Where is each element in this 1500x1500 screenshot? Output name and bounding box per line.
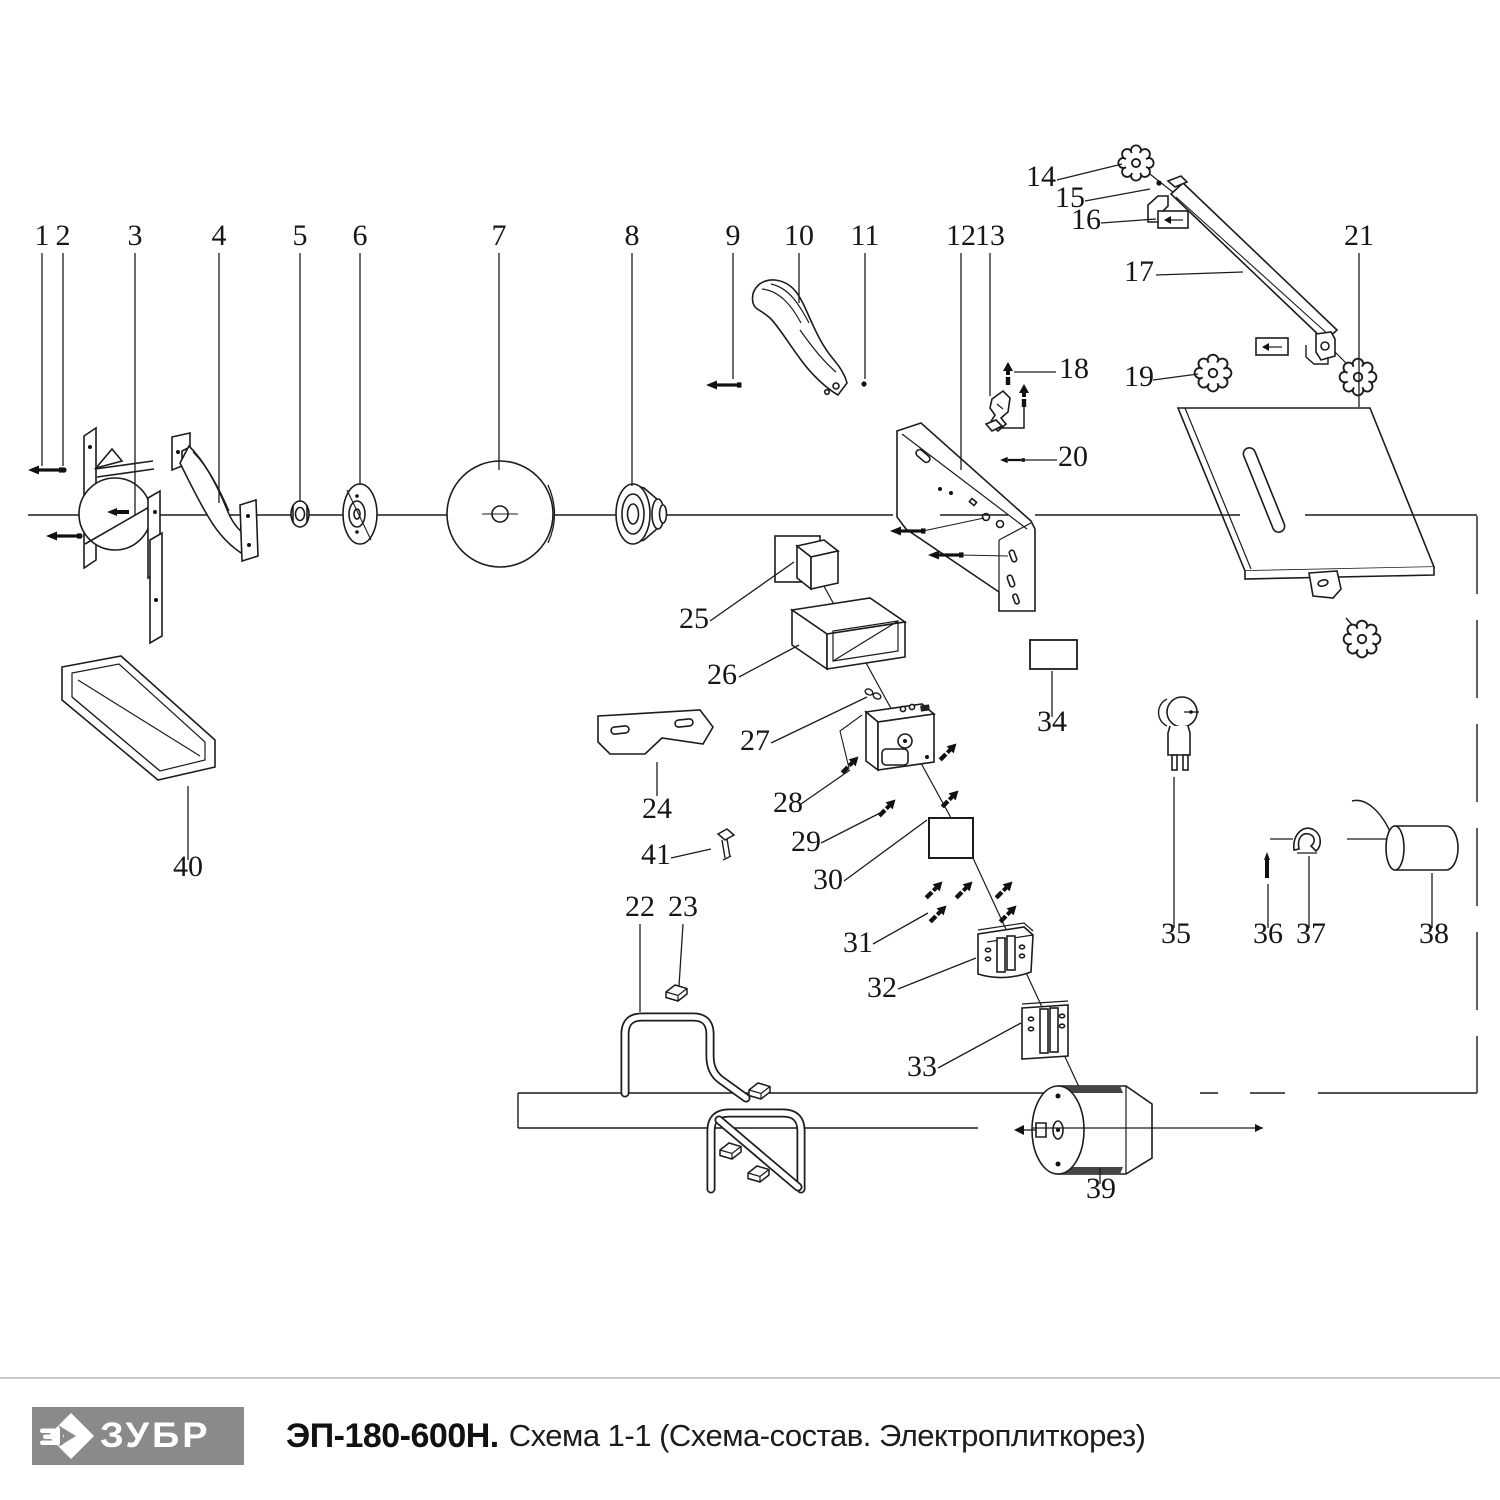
part-31-screws bbox=[923, 878, 1020, 925]
part-label-33: 33 bbox=[907, 1050, 937, 1083]
part-13-cable-clamp bbox=[986, 391, 1024, 431]
part-35-power-plug bbox=[1159, 697, 1199, 770]
part-label-23: 23 bbox=[668, 890, 698, 923]
part-label-11: 11 bbox=[851, 219, 880, 252]
part-17-guide-rail bbox=[1146, 171, 1351, 368]
part-label-2: 2 bbox=[56, 219, 71, 252]
part-label-13: 13 bbox=[975, 219, 1005, 252]
zubr-logo-icon bbox=[38, 1407, 100, 1465]
part-32-brush-holder bbox=[978, 923, 1033, 978]
part-label-24: 24 bbox=[642, 792, 672, 825]
part-label-41: 41 bbox=[641, 838, 671, 871]
part-label-35: 35 bbox=[1161, 917, 1191, 950]
part-label-17: 17 bbox=[1124, 255, 1154, 288]
drawing-title: ЭП-180-600Н. Схема 1-1 (Схема-состав. Эл… bbox=[286, 1400, 1146, 1472]
rail-end-knob bbox=[1340, 359, 1377, 396]
part-label-9: 9 bbox=[726, 219, 741, 252]
part-label-8: 8 bbox=[625, 219, 640, 252]
leader-lines bbox=[42, 164, 1432, 1184]
part-label-34: 34 bbox=[1037, 705, 1067, 738]
part-label-12: 12 bbox=[946, 219, 976, 252]
footer-separator bbox=[0, 1377, 1500, 1379]
part-label-1: 1 bbox=[35, 219, 50, 252]
part-label-4: 4 bbox=[212, 219, 227, 252]
part-7-cutting-disc bbox=[447, 461, 555, 567]
part-label-16: 16 bbox=[1071, 203, 1101, 236]
part-label-39: 39 bbox=[1086, 1172, 1116, 1205]
part-22-tube-frame bbox=[625, 1017, 801, 1189]
part-label-30: 30 bbox=[813, 863, 843, 896]
zubr-logo: ЗУБР bbox=[32, 1407, 244, 1465]
part-9-bolt bbox=[706, 381, 742, 390]
part-19-star-knob bbox=[1195, 355, 1232, 392]
part-33-brush-holder bbox=[1022, 1001, 1068, 1059]
part-label-10: 10 bbox=[784, 219, 814, 252]
part-27-screw bbox=[864, 688, 882, 700]
part-10-handle-bracket bbox=[753, 280, 847, 395]
part-label-36: 36 bbox=[1253, 917, 1283, 950]
part-6-outer-flange bbox=[343, 484, 377, 544]
part-24-cover-plate bbox=[598, 710, 713, 754]
part-8-inner-flange bbox=[616, 484, 667, 544]
part-label-21: 21 bbox=[1344, 219, 1374, 252]
part-41-bolt bbox=[718, 829, 734, 860]
part-label-28: 28 bbox=[773, 786, 803, 819]
part-label-18: 18 bbox=[1059, 352, 1089, 385]
part-label-40: 40 bbox=[173, 850, 203, 883]
part-30-plate bbox=[929, 818, 973, 858]
part-15-pin bbox=[1156, 180, 1161, 185]
part-label-3: 3 bbox=[128, 219, 143, 252]
brand-name: ЗУБР bbox=[100, 1419, 211, 1454]
footer: ЗУБР ЭП-180-600Н. Схема 1-1 (Схема-соста… bbox=[0, 1400, 1500, 1500]
part-label-31: 31 bbox=[843, 926, 873, 959]
part-label-27: 27 bbox=[740, 724, 770, 757]
part-label-38: 38 bbox=[1419, 917, 1449, 950]
part-39-motor bbox=[1014, 1086, 1152, 1174]
part-3-blade-guard bbox=[79, 428, 162, 643]
part-12-motor-bracket bbox=[897, 423, 1035, 611]
part-37-cable-clamp bbox=[1270, 828, 1320, 853]
part-label-6: 6 bbox=[353, 219, 368, 252]
part-label-7: 7 bbox=[492, 219, 507, 252]
center-axis-lines bbox=[28, 515, 1477, 1128]
part-14-star-knob bbox=[1118, 145, 1153, 180]
part-5-nut bbox=[291, 501, 309, 527]
part-label-19: 19 bbox=[1124, 360, 1154, 393]
part-number-labels: 1 2 3 4 5 6 7 8 9 10 11 12 13 14 15 16 1… bbox=[35, 160, 1450, 1205]
part-38-capacitor bbox=[1347, 800, 1458, 870]
part-label-26: 26 bbox=[707, 658, 737, 691]
part-4-guard-bracket bbox=[172, 433, 258, 561]
part-25-switch-cover bbox=[775, 536, 838, 589]
part-34-plate bbox=[1030, 640, 1077, 669]
scheme-subtitle: Схема 1-1 (Схема-состав. Электроплиткоре… bbox=[509, 1418, 1146, 1454]
part-36-screw bbox=[1264, 852, 1270, 878]
parts-diagram-page: 1 2 3 4 5 6 7 8 9 10 11 12 13 14 15 16 1… bbox=[0, 0, 1500, 1500]
table-knob bbox=[1344, 621, 1381, 658]
part-label-29: 29 bbox=[791, 825, 821, 858]
model-name: ЭП-180-600Н. bbox=[286, 1417, 499, 1456]
part-1-screw bbox=[28, 466, 82, 541]
part-2-pin bbox=[61, 467, 82, 538]
part-26-switch-housing bbox=[792, 598, 905, 669]
part-40-water-tray bbox=[62, 656, 215, 780]
part-label-14: 14 bbox=[1026, 160, 1056, 193]
part-label-32: 32 bbox=[867, 971, 897, 1004]
part-label-37: 37 bbox=[1296, 917, 1326, 950]
part-21-table bbox=[1178, 408, 1434, 627]
part-label-25: 25 bbox=[679, 602, 709, 635]
part-label-22: 22 bbox=[625, 890, 655, 923]
part-11-pin bbox=[861, 381, 866, 386]
part-label-5: 5 bbox=[293, 219, 308, 252]
part-label-20: 20 bbox=[1058, 440, 1088, 473]
exploded-view-drawing: 1 2 3 4 5 6 7 8 9 10 11 12 13 14 15 16 1… bbox=[0, 0, 1500, 1378]
